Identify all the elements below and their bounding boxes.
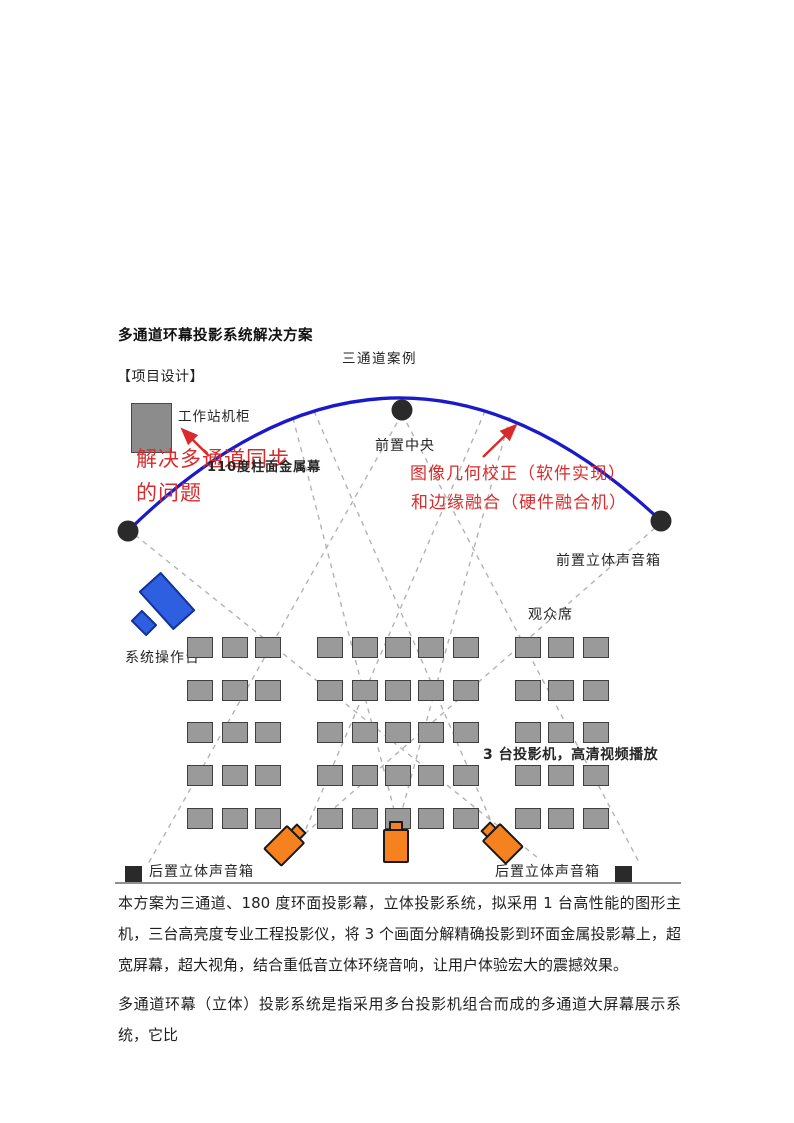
rear-speaker-left-label: 后置立体声音箱	[149, 864, 254, 880]
seat	[418, 637, 444, 658]
diagram-text-divider	[115, 882, 681, 884]
seat	[222, 808, 248, 829]
seat	[222, 722, 248, 743]
seat	[352, 808, 378, 829]
seat	[222, 637, 248, 658]
front-center-label: 前置中央	[375, 438, 435, 454]
seat	[385, 765, 411, 786]
seat	[255, 637, 281, 658]
seat	[317, 680, 343, 701]
document-page: 多通道环幕投影系统解决方案 三通道案例 【项目设计】 工作站机柜 解决多通道同步…	[0, 0, 794, 1123]
correction-note-line1: 图像几何校正（软件实现）	[410, 459, 626, 484]
seat	[317, 722, 343, 743]
seat	[187, 722, 213, 743]
red-arrow-to-screen	[483, 426, 515, 457]
seat	[548, 722, 574, 743]
seat	[352, 722, 378, 743]
screen-endpoint-dot-left	[118, 521, 139, 542]
seat	[255, 765, 281, 786]
seat	[418, 722, 444, 743]
front-center-dot	[392, 400, 413, 421]
body-paragraph-1: 本方案为三通道、180 度环面投影幕，立体投影系统，拟采用 1 台高性能的图形主…	[118, 888, 681, 981]
screen-endpoint-dot-right	[651, 511, 672, 532]
seat	[515, 765, 541, 786]
projector-body	[383, 829, 409, 863]
seat	[453, 680, 479, 701]
seat	[453, 637, 479, 658]
workstation-cabinet-label: 工作站机柜	[178, 410, 251, 426]
seat	[385, 722, 411, 743]
seat	[187, 637, 213, 658]
correction-note-line2: 和边缘融合（硬件融合机）	[411, 488, 627, 513]
projectors-note: 3 台投影机，高清视频播放	[483, 747, 658, 763]
audience-label: 观众席	[528, 607, 573, 623]
dashed-line-screen-to-center-projector-left	[293, 418, 398, 825]
seat	[583, 637, 609, 658]
rear-speaker-right-icon	[615, 866, 632, 883]
seat	[385, 637, 411, 658]
seat	[418, 765, 444, 786]
screen-spec-label: 110度柱面金属幕	[207, 461, 321, 476]
seat	[317, 637, 343, 658]
seat	[317, 808, 343, 829]
seat	[187, 765, 213, 786]
seat	[453, 808, 479, 829]
seat	[317, 765, 343, 786]
seat	[515, 637, 541, 658]
front-speaker-label: 前置立体声音箱	[556, 553, 661, 569]
seat	[352, 765, 378, 786]
seat	[583, 808, 609, 829]
seat	[453, 722, 479, 743]
seat	[515, 680, 541, 701]
seat	[583, 722, 609, 743]
rear-speaker-right-label: 后置立体声音箱	[495, 864, 600, 880]
seat	[548, 765, 574, 786]
seat	[187, 808, 213, 829]
seat	[187, 680, 213, 701]
seat	[548, 680, 574, 701]
seat	[255, 808, 281, 829]
seat	[453, 765, 479, 786]
rear-speaker-left-icon	[125, 866, 142, 883]
seat	[515, 722, 541, 743]
projector-center	[383, 821, 409, 863]
seat	[222, 765, 248, 786]
seat	[418, 808, 444, 829]
seat	[352, 637, 378, 658]
seat	[385, 680, 411, 701]
seat	[255, 680, 281, 701]
seat	[352, 680, 378, 701]
sync-note-line2: 的问题	[136, 477, 202, 507]
seat	[548, 637, 574, 658]
seat	[222, 680, 248, 701]
seat	[583, 765, 609, 786]
seat	[548, 808, 574, 829]
seat	[515, 808, 541, 829]
body-paragraph-2: 多通道环幕（立体）投影系统是指采用多台投影机组合而成的多通道大屏幕展示系统，它比	[118, 989, 681, 1051]
seat	[583, 680, 609, 701]
seat	[255, 722, 281, 743]
seat	[418, 680, 444, 701]
